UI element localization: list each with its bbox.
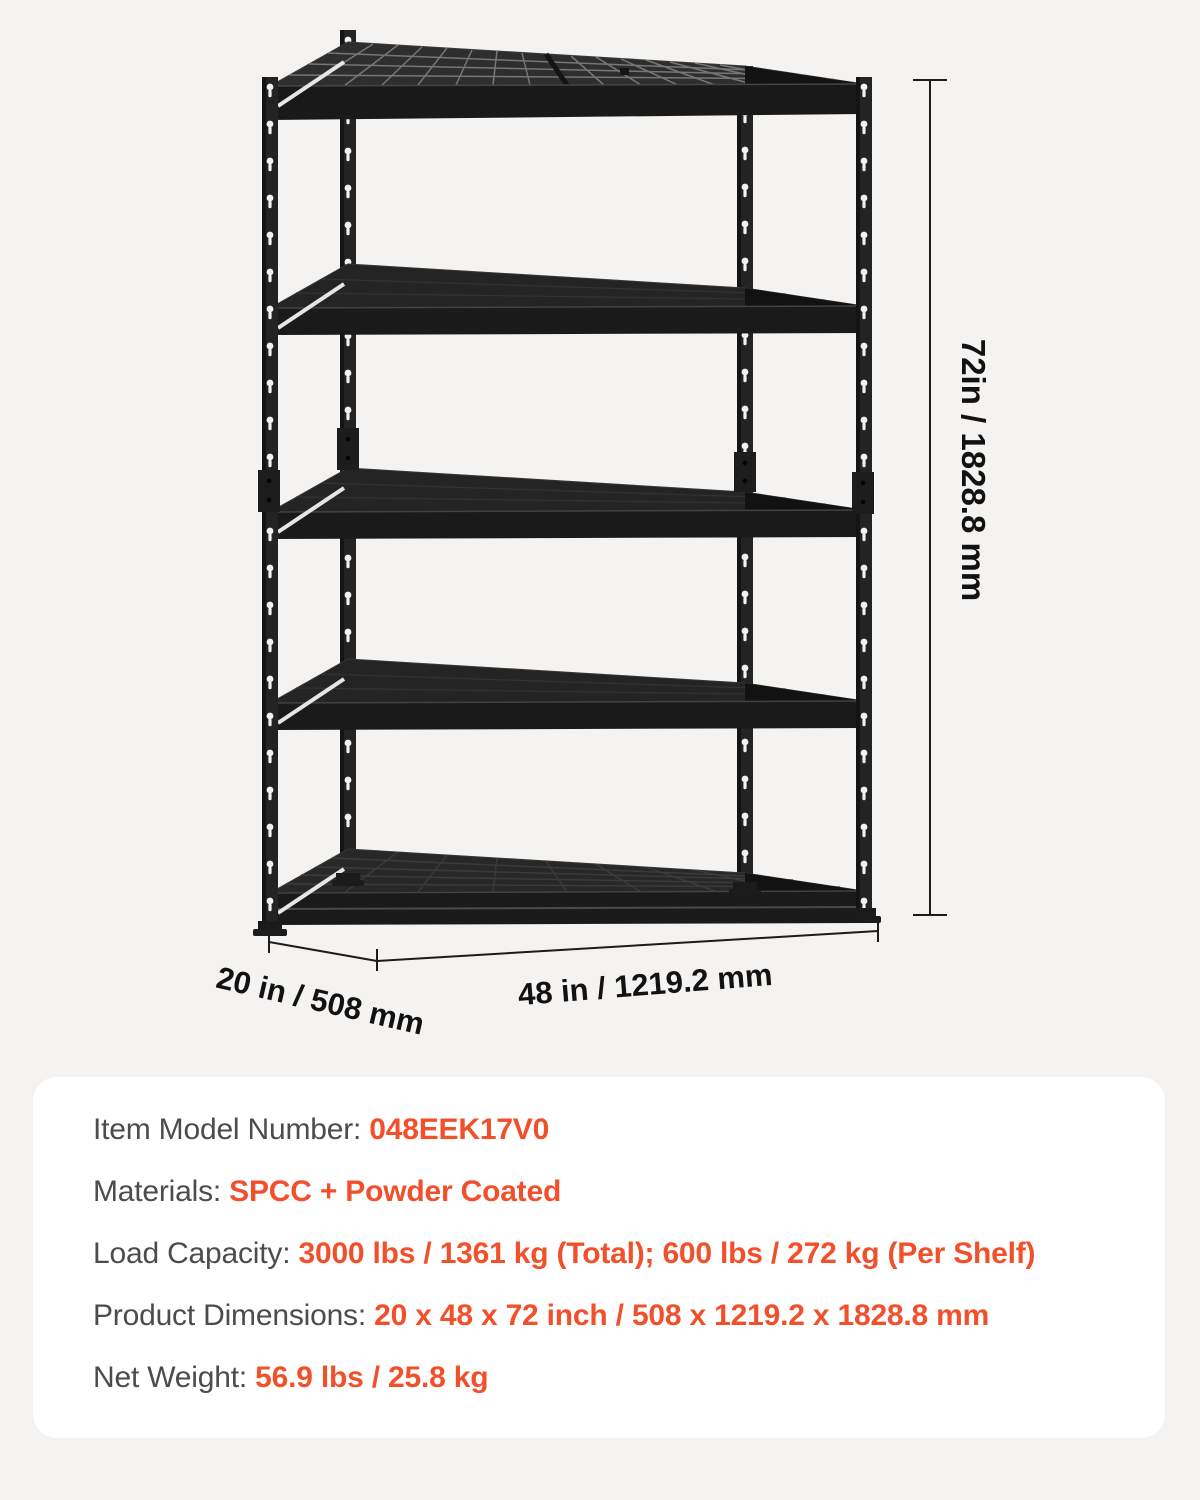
spec-value: 048EEK17V0	[369, 1113, 549, 1146]
spec-row-load-capacity: Load Capacity: 3000 lbs / 1361 kg (Total…	[93, 1223, 1135, 1285]
spec-label: Product Dimensions:	[93, 1299, 374, 1332]
shelf-3	[270, 468, 864, 539]
shelving-rack-illustration: 72in / 1828.8 mm 20 in / 508 mm 48 in / …	[0, 0, 1200, 1060]
spec-label: Load Capacity:	[93, 1237, 298, 1270]
shelf-2	[270, 659, 864, 730]
infographic-page: 72in / 1828.8 mm 20 in / 508 mm 48 in / …	[0, 0, 1200, 1500]
specs-panel: Item Model Number: 048EEK17V0 Materials:…	[33, 1077, 1165, 1438]
spec-row-model-number: Item Model Number: 048EEK17V0	[93, 1099, 1135, 1161]
spec-value: 56.9 lbs / 25.8 kg	[255, 1361, 488, 1394]
spec-value: 20 x 48 x 72 inch / 508 x 1219.2 x 1828.…	[374, 1299, 989, 1332]
height-dimension-label: 72in / 1828.8 mm	[955, 339, 992, 601]
spec-label: Item Model Number:	[93, 1113, 369, 1146]
spec-label: Net Weight:	[93, 1361, 255, 1394]
spec-label: Materials:	[93, 1175, 229, 1208]
shelf-5	[270, 42, 864, 120]
width-dimension-label: 48 in / 1219.2 mm	[517, 957, 774, 1012]
spec-row-net-weight: Net Weight: 56.9 lbs / 25.8 kg	[93, 1347, 1135, 1409]
spec-value: SPCC + Powder Coated	[229, 1175, 561, 1208]
spec-value: 3000 lbs / 1361 kg (Total); 600 lbs / 27…	[298, 1237, 1035, 1270]
depth-dimension-label: 20 in / 508 mm	[213, 960, 427, 1042]
spec-row-materials: Materials: SPCC + Powder Coated	[93, 1161, 1135, 1223]
spec-row-product-dimensions: Product Dimensions: 20 x 48 x 72 inch / …	[93, 1285, 1135, 1347]
shelf-4	[270, 264, 864, 335]
shelf-1	[270, 849, 864, 925]
